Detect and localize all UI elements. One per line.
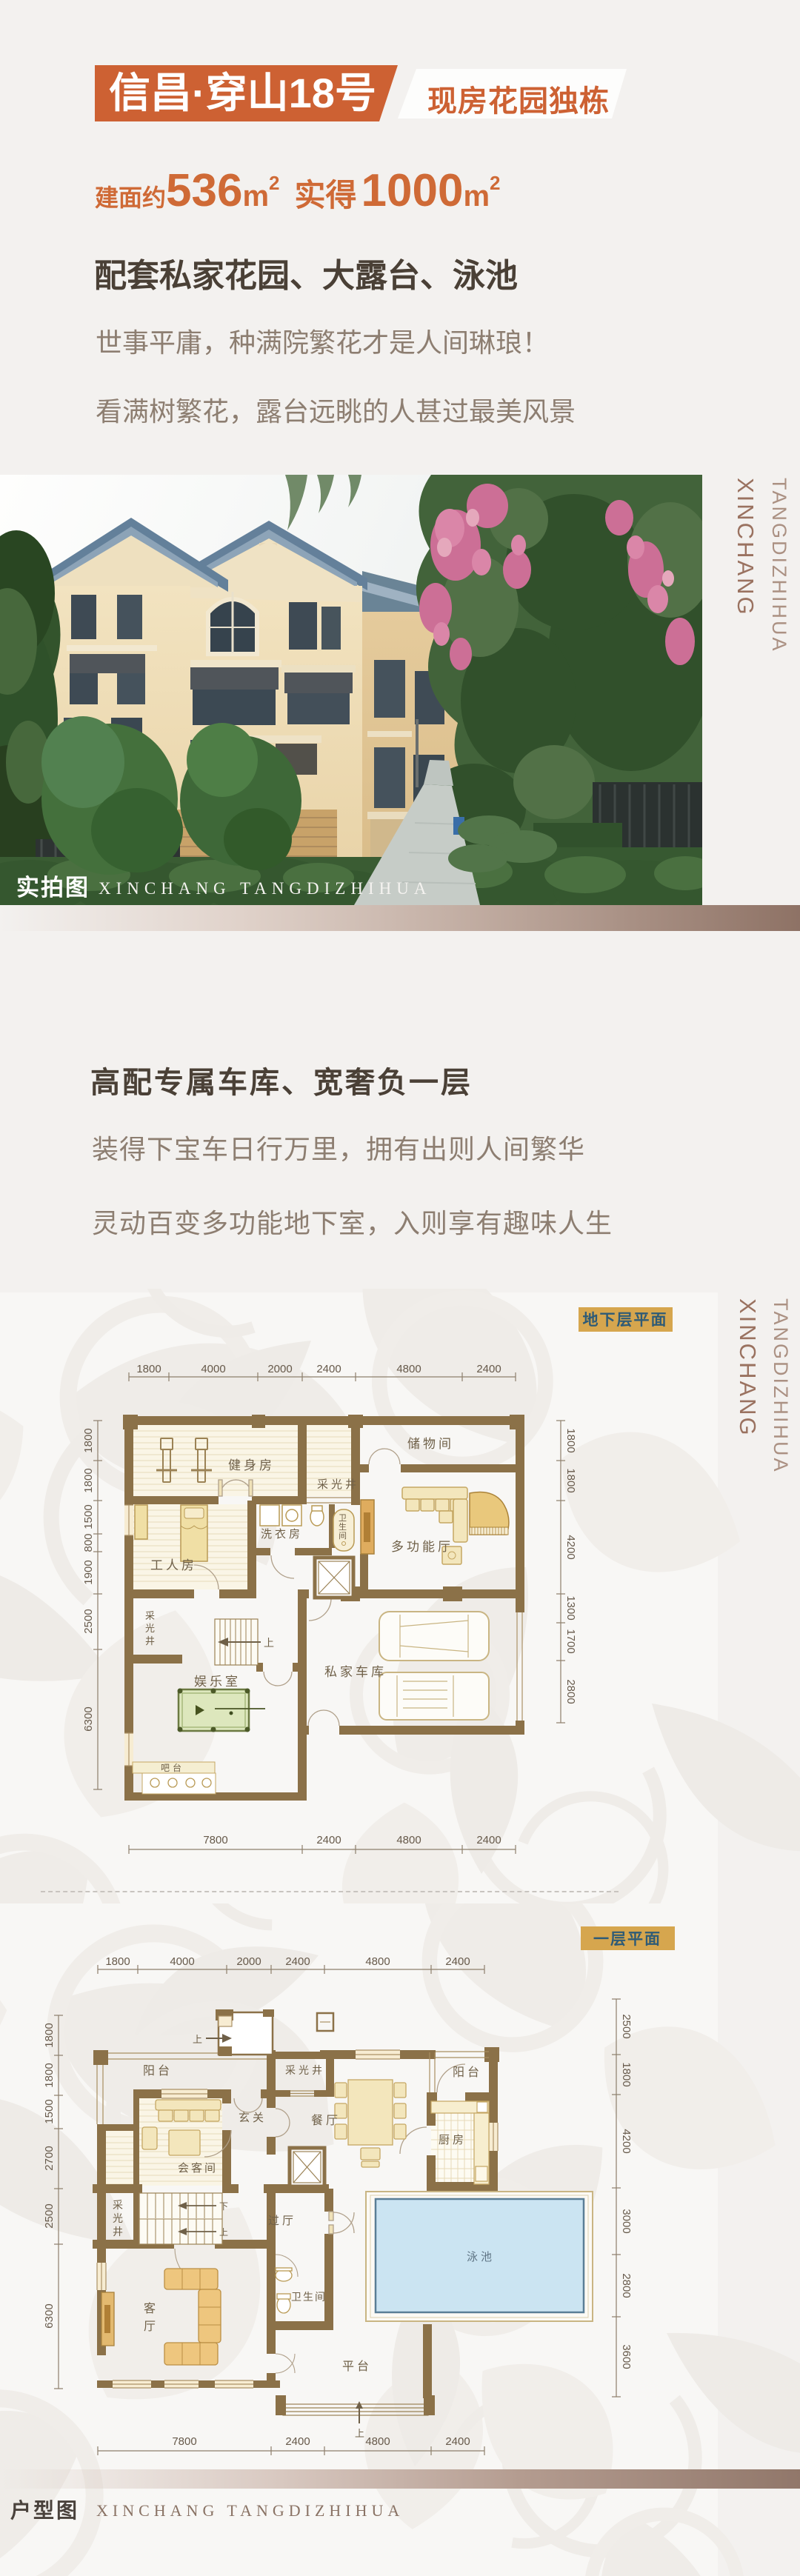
svg-text:卫: 卫 [339,1514,347,1523]
svg-text:过厅: 过厅 [268,2215,296,2227]
svg-text:1800: 1800 [105,1955,130,1968]
svg-text:2500: 2500 [620,2014,633,2038]
svg-text:2800: 2800 [620,2273,633,2298]
svg-text:玄关: 玄关 [239,2112,267,2124]
svg-text:2400: 2400 [316,1363,341,1375]
svg-text:上: 上 [219,2227,228,2238]
svg-text:6300: 6300 [82,1706,95,1731]
svg-text:1800: 1800 [564,1468,577,1492]
svg-text:一层平面: 一层平面 [593,1931,661,1948]
svg-text:地下层平面: 地下层平面 [583,1311,668,1329]
svg-text:采: 采 [113,2199,123,2211]
svg-text:4000: 4000 [201,1363,225,1375]
svg-text:阳台: 阳台 [143,2064,173,2078]
svg-text:2400: 2400 [445,2435,470,2448]
svg-text:3600: 3600 [620,2344,633,2369]
svg-text:1800: 1800 [43,2023,56,2047]
svg-text:餐厅: 餐厅 [311,2114,341,2127]
svg-text:3000: 3000 [620,2209,633,2233]
svg-text:光: 光 [113,2212,123,2224]
svg-text:1800: 1800 [136,1363,161,1375]
svg-text:光: 光 [145,1623,155,1634]
svg-text:1800: 1800 [620,2062,633,2086]
svg-text:上: 上 [264,1637,274,1649]
svg-text:4800: 4800 [396,1363,421,1375]
svg-text:800: 800 [82,1533,95,1552]
svg-text:1500: 1500 [82,1504,95,1529]
svg-text:阳台: 阳台 [453,2066,482,2079]
svg-text:2400: 2400 [316,1834,341,1846]
svg-text:实拍图: 实拍图 [16,875,90,901]
svg-text:2000: 2000 [267,1363,292,1375]
svg-text:2400: 2400 [285,2435,310,2448]
svg-text:会客间: 会客间 [178,2162,218,2175]
svg-text:2700: 2700 [43,2146,56,2170]
svg-text:1800: 1800 [43,2063,56,2087]
svg-text:2400: 2400 [285,1955,310,1968]
svg-text:2400: 2400 [476,1834,501,1846]
svg-text:7800: 7800 [172,2435,196,2448]
svg-text:健身房: 健身房 [228,1458,275,1472]
svg-text:4200: 4200 [620,2129,633,2153]
svg-text:1900: 1900 [82,1560,95,1584]
svg-text:厨房: 厨房 [439,2134,467,2146]
svg-text:厅: 厅 [144,2320,156,2333]
svg-text:储物间: 储物间 [407,1437,454,1451]
svg-text:井: 井 [113,2226,123,2238]
svg-text:1800: 1800 [82,1468,95,1492]
svg-text:4200: 4200 [564,1535,577,1559]
svg-text:采光井: 采光井 [317,1478,359,1491]
svg-text:2500: 2500 [82,1609,95,1633]
svg-text:上: 上 [355,2428,364,2439]
svg-text:1300: 1300 [564,1595,577,1620]
svg-text:上: 上 [193,2034,202,2045]
svg-text:客: 客 [144,2302,156,2315]
svg-text:多功能厅: 多功能厅 [391,1540,453,1554]
svg-text:洗衣房: 洗衣房 [261,1528,303,1541]
svg-text:4800: 4800 [396,1834,421,1846]
svg-text:1800: 1800 [564,1428,577,1452]
svg-text:2800: 2800 [564,1679,577,1704]
svg-text:4800: 4800 [365,1955,390,1968]
svg-text:4800: 4800 [365,2435,390,2448]
svg-text:2400: 2400 [445,1955,470,1968]
svg-text:7800: 7800 [203,1834,227,1846]
svg-text:1700: 1700 [564,1629,577,1653]
svg-text:井: 井 [145,1635,155,1646]
svg-text:采光井: 采光井 [285,2064,325,2076]
svg-text:XINCHANG TANGDIZHIHUA: XINCHANG TANGDIZHIHUA [99,879,431,898]
svg-text:娱乐室: 娱乐室 [194,1675,241,1689]
svg-text:1800: 1800 [82,1428,95,1452]
svg-text:工人房: 工人房 [150,1558,197,1572]
svg-text:2000: 2000 [236,1955,261,1968]
svg-text:下: 下 [219,2201,228,2212]
svg-text:2500: 2500 [43,2203,56,2228]
svg-text:4000: 4000 [170,1955,194,1968]
svg-text:6300: 6300 [43,2303,56,2328]
svg-text:1500: 1500 [43,2099,56,2123]
svg-text:生: 生 [339,1521,347,1532]
svg-text:采: 采 [145,1610,155,1621]
svg-text:2400: 2400 [476,1363,501,1375]
svg-text:卫生间: 卫生间 [291,2291,327,2303]
svg-text:吧台: 吧台 [161,1762,184,1773]
svg-text:平台: 平台 [342,2360,372,2373]
svg-text:间: 间 [339,1531,347,1541]
svg-text:私家车库: 私家车库 [324,1665,387,1679]
svg-text:泳池: 泳池 [467,2251,495,2263]
